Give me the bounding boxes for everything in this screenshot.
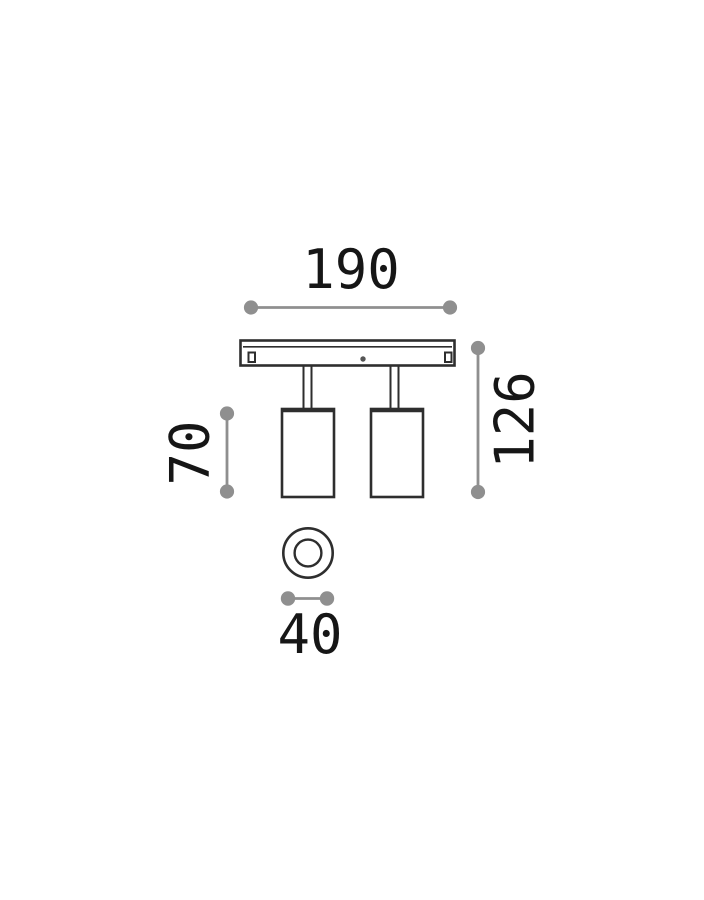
dimension-endpoint-dot bbox=[220, 484, 234, 498]
mounting-bracket-left bbox=[249, 353, 256, 363]
mounting-bracket-right bbox=[445, 353, 452, 363]
spot-top-view-inner-circle bbox=[295, 540, 322, 567]
dimension-endpoint-dot bbox=[244, 300, 258, 314]
dimension-spot-length-label: 70 bbox=[159, 420, 222, 485]
dimension-width: 190 bbox=[244, 238, 457, 315]
dimension-spot-diameter: 40 bbox=[277, 591, 342, 666]
dimension-spot-diameter-label: 40 bbox=[277, 603, 342, 666]
dimension-spot-length: 70 bbox=[159, 406, 235, 498]
dimension-height-label: 126 bbox=[484, 371, 547, 469]
dimension-endpoint-dot bbox=[220, 406, 234, 420]
dimension-height: 126 bbox=[471, 341, 547, 499]
dimension-endpoint-dot bbox=[471, 341, 485, 355]
drawing-canvas: 190 126 bbox=[0, 0, 704, 900]
technical-drawing: 190 126 bbox=[0, 0, 704, 900]
dimension-endpoint-dot bbox=[443, 300, 457, 314]
dimension-width-label: 190 bbox=[302, 238, 400, 301]
dimension-endpoint-dot bbox=[471, 485, 485, 499]
mounting-bar bbox=[241, 341, 455, 366]
fixture-front-view bbox=[241, 341, 455, 498]
mounting-screw-dot bbox=[360, 356, 365, 361]
spot-top-view bbox=[283, 528, 332, 577]
spot-cylinder-left bbox=[282, 409, 334, 497]
spot-top-view-outer-circle bbox=[283, 528, 332, 577]
spot-cylinder-right bbox=[371, 409, 423, 497]
